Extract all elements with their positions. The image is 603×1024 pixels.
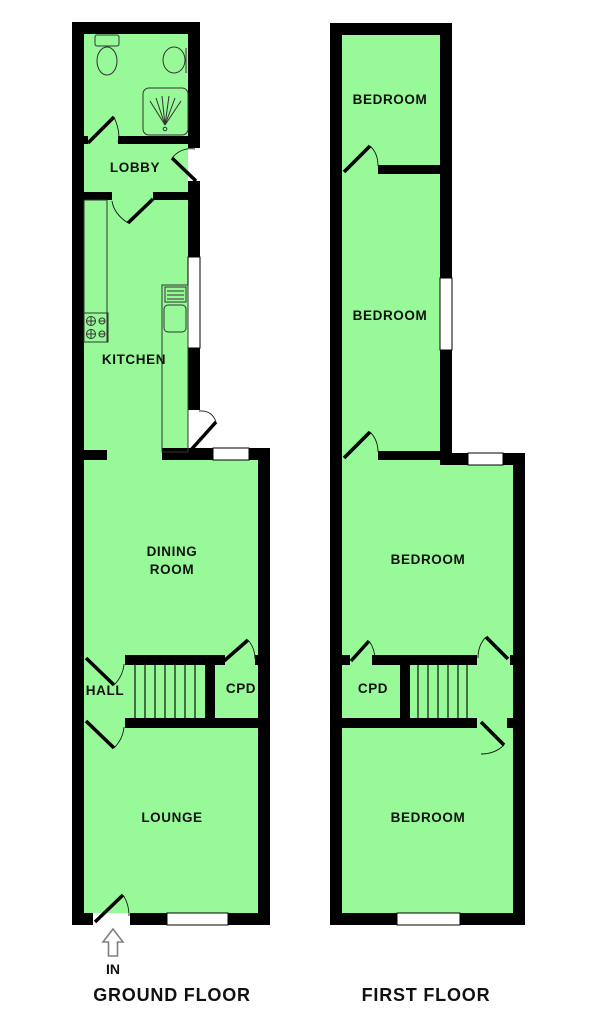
entrance-up-arrow-icon xyxy=(103,929,123,956)
bedroom-front-label: BEDROOM xyxy=(353,92,428,107)
ground-floor-plan: LOBBY KITCHEN DINING ROOM HALL CPD LOUNG… xyxy=(72,22,270,1005)
first-floor-title: FIRST FLOOR xyxy=(362,985,491,1005)
dining-window xyxy=(213,448,249,460)
bedroom-third-window xyxy=(468,453,503,465)
bedroom-middle-window xyxy=(440,278,452,350)
bedroom-third-label: BEDROOM xyxy=(391,552,466,567)
kitchen-label: KITCHEN xyxy=(102,352,166,367)
hall-label: HALL xyxy=(86,683,124,698)
kitchen-window xyxy=(188,257,200,348)
lounge-label: LOUNGE xyxy=(141,810,202,825)
dining-room-label-line2: ROOM xyxy=(150,562,194,577)
floorplan-drawing: LOBBY KITCHEN DINING ROOM HALL CPD LOUNG… xyxy=(0,0,603,1024)
ground-cpd-label: CPD xyxy=(226,681,256,696)
lounge-window xyxy=(167,913,228,925)
kitchen-dining-opening xyxy=(107,446,162,464)
first-floor-plan: BEDROOM BEDROOM BEDROOM CPD BEDROOM FIRS… xyxy=(330,23,525,1005)
bedroom-back-label: BEDROOM xyxy=(391,810,466,825)
entrance-in-label: IN xyxy=(106,961,120,977)
bedroom-back-window xyxy=(397,913,460,925)
first-cpd-label: CPD xyxy=(358,681,388,696)
lobby-label: LOBBY xyxy=(110,160,160,175)
dining-room-label-line1: DINING xyxy=(147,544,198,559)
bedroom-middle-label: BEDROOM xyxy=(353,308,428,323)
ground-narrow-rooms xyxy=(84,34,188,450)
ground-floor-title: GROUND FLOOR xyxy=(93,985,251,1005)
floorplan-page: LOBBY KITCHEN DINING ROOM HALL CPD LOUNG… xyxy=(0,0,603,1024)
